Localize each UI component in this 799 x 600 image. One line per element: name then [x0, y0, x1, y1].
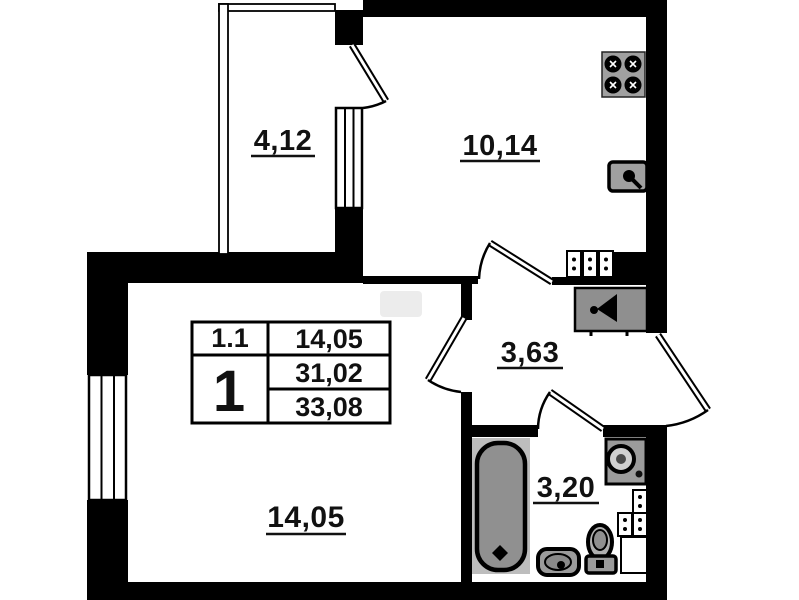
wall-livingdoor-jamb — [461, 283, 472, 320]
kitchen-area-label: 10,14 — [462, 130, 537, 162]
wall-balcony-bottom-seg — [335, 208, 363, 253]
living-room-door — [428, 318, 464, 392]
washing-machine-icon — [606, 439, 646, 484]
floor-plan: 4,12 10,14 3,63 3,20 14,05 1.1 14,05 1 3… — [0, 0, 799, 600]
washbasin-icon — [538, 549, 579, 575]
balcony-window — [336, 108, 362, 208]
wall-hall-corner — [612, 252, 646, 285]
wall-bath-top-east — [603, 425, 667, 437]
wall-bottom — [87, 582, 667, 600]
electric-meter-icon — [567, 251, 613, 277]
bathroom-area-label: 3,20 — [537, 472, 595, 504]
kitchen-door — [479, 243, 552, 282]
wall-left-lower — [87, 500, 128, 582]
stamp-area-total: 33,08 — [295, 392, 363, 422]
kitchen-sink-icon — [609, 162, 647, 191]
stamp-table: 1.1 14,05 1 31,02 33,08 — [192, 322, 390, 424]
toilet-icon — [586, 525, 616, 573]
bathroom-door — [538, 392, 603, 429]
wall-top — [363, 0, 666, 17]
balcony-area-label: 4,12 — [254, 125, 312, 157]
hallway-area-label: 3,63 — [501, 337, 559, 369]
stamp-unit-code: 1.1 — [211, 323, 249, 353]
wall-bath-top-west — [461, 425, 538, 437]
wall-living-bath — [461, 392, 472, 582]
wall-living-top — [87, 252, 363, 283]
stamp-area-main: 31,02 — [295, 358, 363, 388]
wall-kitchen-bottom-west — [363, 276, 478, 284]
wall-right-upper — [646, 0, 667, 333]
balcony-door — [352, 45, 386, 108]
railing-left — [219, 4, 228, 254]
stove-icon — [602, 52, 645, 97]
railing-top — [219, 4, 335, 11]
wall-right-lower — [646, 425, 667, 600]
intercom-icon — [575, 288, 647, 336]
bathroom-meters — [618, 490, 647, 573]
entrance-door — [658, 335, 708, 426]
faded-watermark — [380, 291, 422, 317]
living-room-window — [89, 375, 126, 500]
living-room-area-label: 14,05 — [267, 501, 345, 534]
stamp-living-area: 14,05 — [295, 324, 363, 354]
floor-plan-canvas: 4,12 10,14 3,63 3,20 14,05 1.1 14,05 1 3… — [0, 0, 799, 600]
wall-balcony-top-seg — [335, 10, 363, 45]
bathtub-icon — [472, 438, 530, 574]
stamp-room-count: 1 — [213, 359, 245, 424]
